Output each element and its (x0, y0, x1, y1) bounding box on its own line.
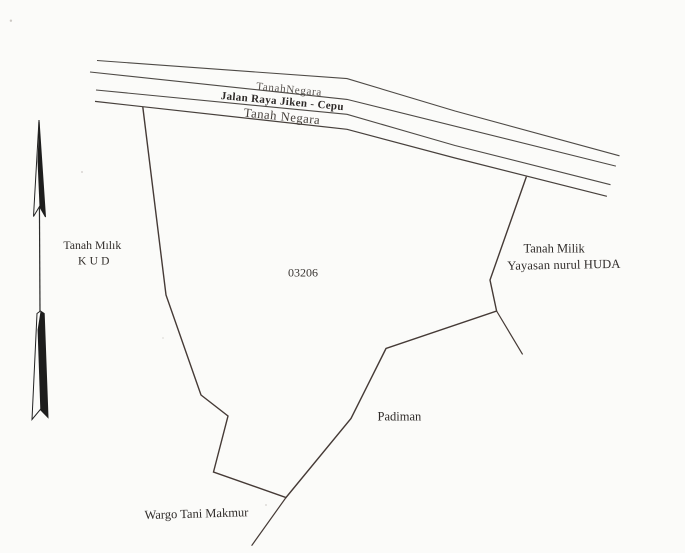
svg-text:Tanah Milik: Tanah Milik (524, 241, 586, 255)
svg-text:Yayasan nurul HUDA: Yayasan nurul HUDA (507, 257, 620, 273)
svg-text:Padiman: Padiman (378, 409, 422, 423)
svg-text:Tanah Mılık: Tanah Mılık (63, 238, 121, 252)
svg-text:K U D: K U D (78, 255, 110, 267)
svg-text:Wargo Tani Makmur: Wargo Tani Makmur (144, 505, 249, 522)
svg-text:03206: 03206 (288, 265, 318, 279)
